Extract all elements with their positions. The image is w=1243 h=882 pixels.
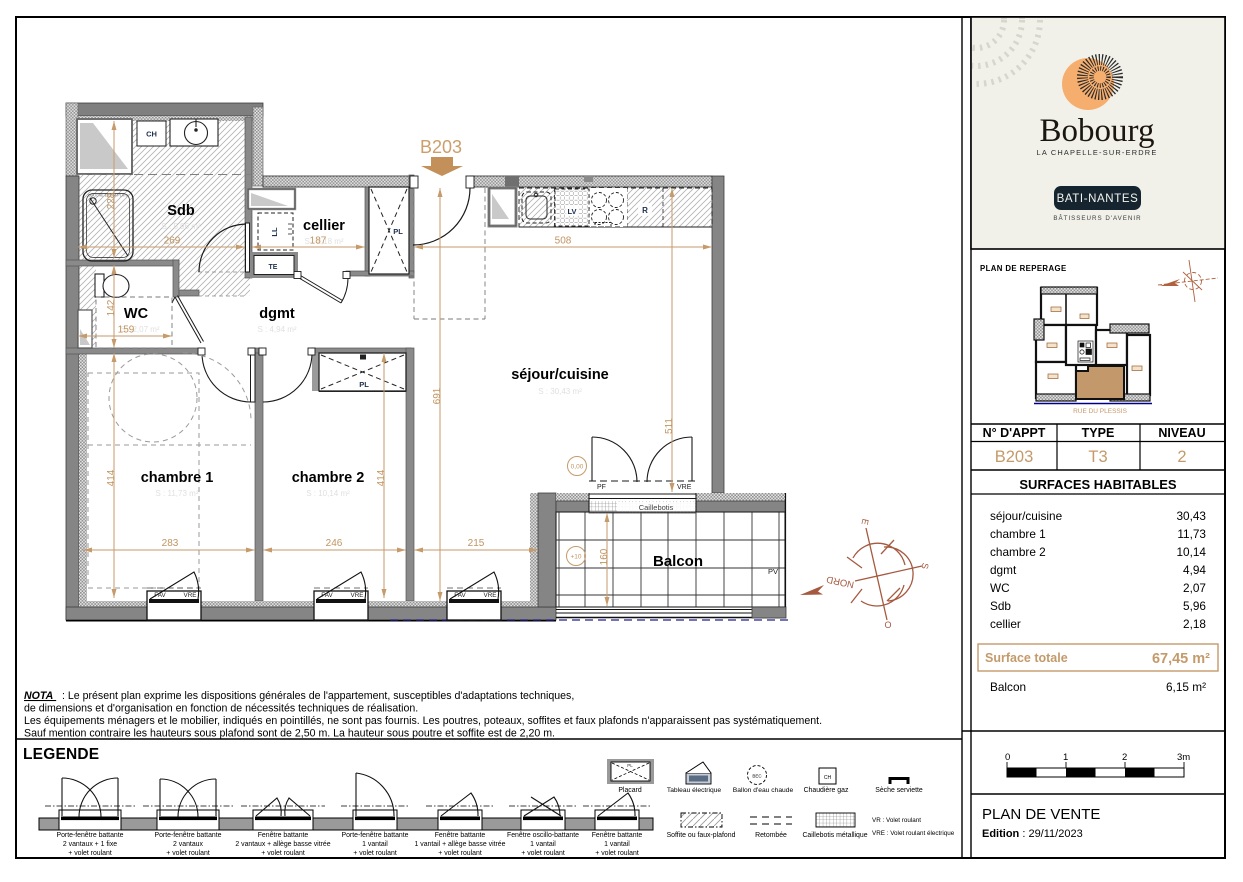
svg-text:FAV: FAV	[454, 592, 466, 599]
svg-text:Edition : 29/11/2023: Edition : 29/11/2023	[982, 828, 1083, 840]
svg-text:dgmt: dgmt	[990, 563, 1017, 577]
svg-text:Porte-fenêtre battante: Porte-fenêtre battante	[154, 832, 221, 839]
svg-text:Caillebotis métallique: Caillebotis métallique	[802, 832, 867, 839]
svg-text:VR : Volet roulant: VR : Volet roulant	[872, 817, 921, 824]
svg-text:1: 1	[1063, 752, 1068, 763]
svg-text:Sauf mention contraire les hau: Sauf mention contraire les hauteurs sous…	[24, 728, 555, 740]
svg-text:414: 414	[376, 469, 387, 486]
svg-text:Soffite ou faux-plafond: Soffite ou faux-plafond	[667, 832, 736, 839]
svg-text:chambre 1: chambre 1	[141, 470, 214, 486]
svg-text:2 vantaux + allège basse vitré: 2 vantaux + allège basse vitrée	[235, 841, 330, 848]
svg-text:0: 0	[1005, 752, 1010, 763]
svg-text:Placard: Placard	[618, 787, 642, 794]
svg-text:3m: 3m	[1177, 752, 1190, 763]
svg-text:PL: PL	[627, 763, 633, 768]
svg-text:1 vantail: 1 vantail	[604, 841, 630, 848]
svg-text:WC: WC	[124, 306, 149, 322]
svg-text:+ volet roulant: + volet roulant	[68, 850, 112, 857]
svg-text:511: 511	[664, 418, 675, 434]
svg-text:S : 30,43 m²: S : 30,43 m²	[538, 387, 582, 396]
svg-text:O: O	[884, 620, 891, 630]
svg-text:508: 508	[555, 236, 572, 247]
svg-text:6,15 m²: 6,15 m²	[1166, 680, 1206, 694]
svg-text:+ volet roulant: + volet roulant	[438, 850, 482, 857]
svg-text:4,94: 4,94	[1183, 563, 1206, 577]
svg-text:VRE : Volet roulant électrique: VRE : Volet roulant électrique	[872, 830, 955, 837]
svg-text:Fenêtre battante: Fenêtre battante	[258, 832, 309, 839]
svg-text:+ volet roulant: + volet roulant	[261, 850, 305, 857]
svg-text:séjour/cuisine: séjour/cuisine	[990, 509, 1063, 523]
svg-text:Sdb: Sdb	[990, 599, 1011, 613]
svg-text:1 vantail: 1 vantail	[362, 841, 388, 848]
svg-text:chambre 1: chambre 1	[990, 527, 1046, 541]
svg-text:160: 160	[599, 548, 610, 565]
svg-text:TE: TE	[269, 264, 278, 271]
svg-text:Balcon: Balcon	[653, 553, 703, 570]
svg-text:chambre 2: chambre 2	[990, 545, 1046, 559]
svg-text:NIVEAU: NIVEAU	[1158, 426, 1205, 440]
svg-text:Bobourg: Bobourg	[1040, 113, 1155, 149]
svg-text:1 vantail + allège basse vitré: 1 vantail + allège basse vitrée	[415, 841, 506, 848]
svg-text:5,96: 5,96	[1183, 599, 1206, 613]
svg-text:BÂTISSEURS D'AVENIR: BÂTISSEURS D'AVENIR	[1053, 215, 1141, 222]
svg-text:PV: PV	[768, 567, 778, 576]
svg-text:Balcon: Balcon	[990, 680, 1026, 694]
svg-text:269: 269	[164, 236, 181, 247]
svg-text:2,07: 2,07	[1183, 581, 1206, 595]
svg-text:SURFACES HABITABLES: SURFACES HABITABLES	[1019, 477, 1177, 492]
svg-text:LEGENDE: LEGENDE	[23, 746, 99, 763]
svg-text:S : 11,73 m²: S : 11,73 m²	[156, 489, 199, 498]
svg-text:Retombée: Retombée	[755, 832, 787, 839]
svg-text:NOTA: NOTA	[24, 690, 56, 702]
svg-text:LL: LL	[270, 227, 279, 237]
svg-text:+ volet roulant: + volet roulant	[595, 850, 639, 857]
svg-text:246: 246	[326, 538, 343, 549]
svg-text:VRE: VRE	[677, 484, 692, 491]
svg-text:PF: PF	[597, 484, 606, 491]
svg-text:+ volet roulant: + volet roulant	[166, 850, 210, 857]
svg-text:159: 159	[118, 325, 135, 336]
svg-text:PLAN DE REPERAGE: PLAN DE REPERAGE	[980, 264, 1067, 273]
svg-text:N° D'APPT: N° D'APPT	[983, 426, 1046, 440]
svg-text:S: S	[920, 562, 931, 570]
svg-text:Chaudière gaz: Chaudière gaz	[804, 787, 849, 794]
svg-text:VRE: VRE	[484, 592, 497, 599]
svg-text:NORD: NORD	[825, 573, 855, 590]
svg-text:PLAN DE VENTE: PLAN DE VENTE	[982, 806, 1100, 823]
svg-text:283: 283	[162, 538, 179, 549]
svg-text:LV: LV	[567, 207, 576, 216]
svg-text:Les équipements ménagers et l: Les équipements ménagers et le mobilier,…	[24, 715, 822, 727]
svg-text:LA CHAPELLE-SUR-ERDRE: LA CHAPELLE-SUR-ERDRE	[1037, 148, 1158, 157]
svg-text:CH: CH	[824, 775, 832, 781]
svg-text:187: 187	[310, 236, 327, 247]
svg-text:2: 2	[1122, 752, 1127, 763]
svg-text:VRE: VRE	[351, 592, 364, 599]
svg-text:BATI-NANTES: BATI-NANTES	[1057, 193, 1139, 205]
svg-text:T3: T3	[1088, 448, 1107, 466]
svg-text:2: 2	[1177, 448, 1186, 466]
svg-text:2,18: 2,18	[1183, 617, 1206, 631]
svg-text:: Le présent plan exprime les: : Le présent plan exprime les dispositio…	[62, 690, 574, 702]
svg-text:+ volet roulant: + volet roulant	[353, 850, 397, 857]
svg-text:11,73: 11,73	[1177, 527, 1206, 541]
svg-text:B203: B203	[995, 448, 1034, 466]
svg-text:B203: B203	[420, 137, 462, 157]
svg-text:Caillebotis: Caillebotis	[639, 503, 674, 512]
svg-text:691: 691	[432, 387, 443, 404]
svg-text:CH: CH	[146, 130, 157, 139]
svg-text:Porte-fenêtre battante: Porte-fenêtre battante	[341, 832, 408, 839]
svg-text:Fenêtre battante: Fenêtre battante	[435, 832, 486, 839]
svg-text:Surface totale: Surface totale	[985, 651, 1068, 665]
svg-text:Ballon d'eau chaude: Ballon d'eau chaude	[733, 787, 794, 794]
svg-text:RUE DU PLESSIS: RUE DU PLESSIS	[1073, 408, 1127, 415]
svg-text:30,43: 30,43	[1176, 509, 1206, 523]
svg-text:FAV: FAV	[321, 592, 333, 599]
svg-text:de dimensions et d'organisatio: de dimensions et d'organisation en fonct…	[24, 703, 418, 715]
svg-text:cellier: cellier	[990, 617, 1021, 631]
svg-text:+10: +10	[570, 554, 581, 561]
svg-text:S : 5,96 m²: S : 5,96 m²	[161, 222, 200, 231]
svg-text:2 vantaux: 2 vantaux	[173, 841, 203, 848]
svg-text:séjour/cuisine: séjour/cuisine	[511, 367, 609, 383]
svg-text:10,14: 10,14	[1176, 545, 1206, 559]
svg-text:Fenêtre oscillo-battante: Fenêtre oscillo-battante	[507, 832, 579, 839]
svg-text:E: E	[860, 518, 871, 526]
svg-text:PL: PL	[359, 380, 369, 389]
svg-text:PL: PL	[393, 227, 403, 236]
svg-text:Fenêtre battante: Fenêtre battante	[592, 832, 643, 839]
svg-text:S : 10,14 m²: S : 10,14 m²	[306, 489, 350, 498]
svg-text:TYPE: TYPE	[1082, 426, 1115, 440]
svg-text:215: 215	[468, 538, 485, 549]
svg-text:FAV: FAV	[154, 592, 166, 599]
svg-text:Sdb: Sdb	[167, 203, 195, 219]
svg-text:cellier: cellier	[303, 218, 345, 234]
svg-text:414: 414	[106, 469, 117, 486]
svg-text:dgmt: dgmt	[259, 306, 295, 322]
svg-text:WC: WC	[990, 581, 1010, 595]
svg-text:2 vantaux + 1 fixe: 2 vantaux + 1 fixe	[63, 841, 117, 848]
svg-text:R: R	[642, 206, 648, 215]
svg-text:+ volet roulant: + volet roulant	[521, 850, 565, 857]
svg-text:VRE: VRE	[184, 592, 197, 599]
svg-text:chambre 2: chambre 2	[292, 470, 365, 486]
svg-text:0,00: 0,00	[571, 464, 584, 471]
svg-text:228: 228	[106, 192, 117, 209]
svg-text:142: 142	[106, 299, 117, 316]
svg-text:Sèche serviette: Sèche serviette	[875, 787, 923, 794]
svg-text:Porte-fenêtre battante: Porte-fenêtre battante	[56, 832, 123, 839]
svg-text:BEC: BEC	[752, 774, 762, 779]
svg-text:Tableau électrique: Tableau électrique	[667, 787, 722, 794]
svg-text:1 vantail: 1 vantail	[530, 841, 556, 848]
svg-text:S : 4,94 m²: S : 4,94 m²	[257, 325, 296, 334]
svg-text:67,45 m²: 67,45 m²	[1152, 651, 1210, 667]
